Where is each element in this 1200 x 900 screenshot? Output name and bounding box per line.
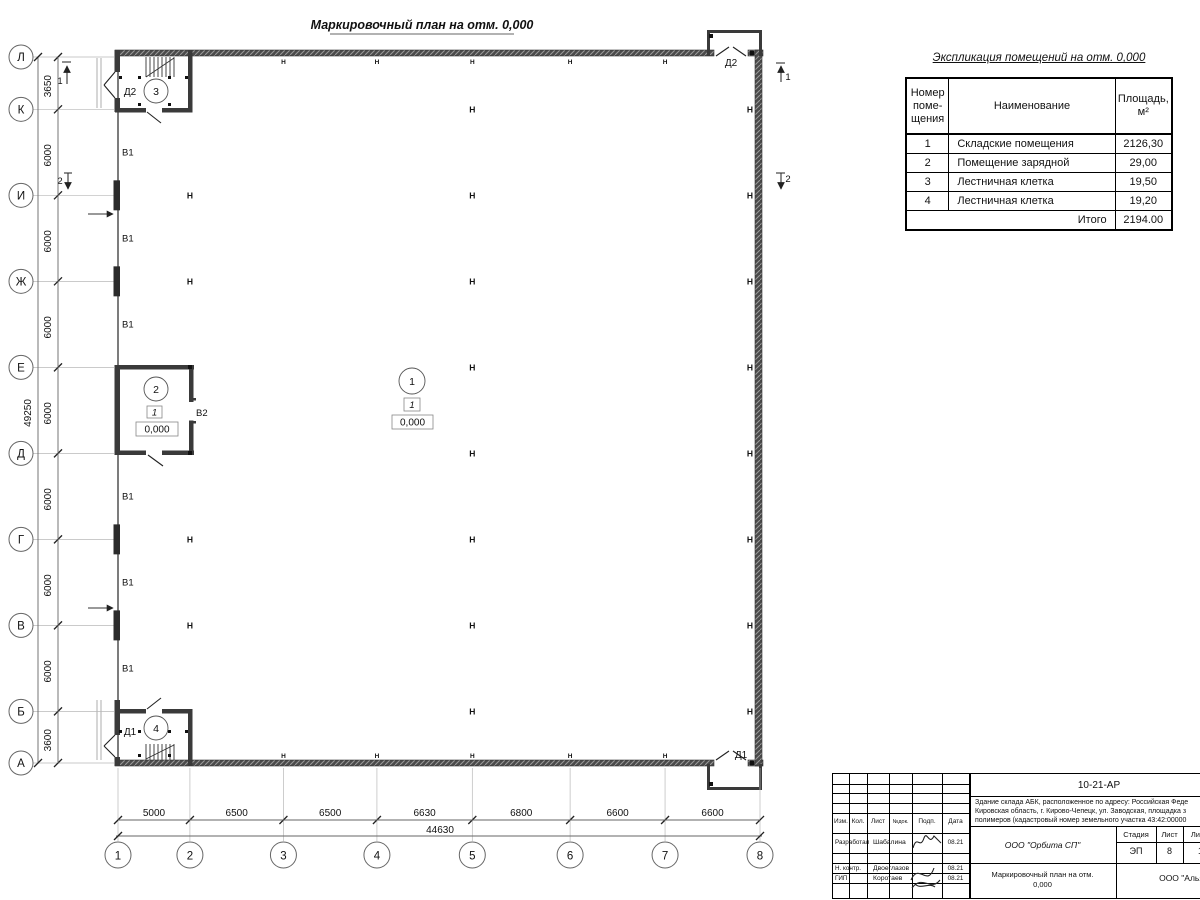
steel-column-symbol: Н [747,104,753,114]
exterior-walls [115,50,764,766]
door-leaf [104,735,115,757]
steel-column-symbol: Н [187,620,193,630]
door-label: Д2 [124,87,137,98]
stage-value: ЭП [1116,846,1156,856]
steel-column-symbol: Н [187,276,193,286]
col-axis-label: 8 [757,851,763,863]
col-podp: Подп. [912,818,942,825]
steel-column-symbol: Н [747,534,753,544]
steel-column-symbol: Н [663,753,668,760]
room-name-cell: Лестничная клетка [949,192,1115,211]
steel-column-symbol: Н [469,534,475,544]
dimension-text: 6800 [510,808,533,819]
header-line: щения [907,113,948,126]
floor-type: 1 [409,400,414,411]
sheets-value: 17 [1183,846,1200,856]
signature [907,860,945,892]
dimension-text: 6500 [226,808,249,819]
pilaster [114,524,121,554]
col-axis-label: 4 [374,851,381,863]
door-label: Д1 [735,750,748,761]
floor-plan: Маркировочный план на отм. 0,000 [0,0,830,900]
door-leaf [104,72,115,98]
col-header-name: Наименование [949,78,1115,134]
dimension-text: 6000 [43,316,54,339]
title-block: Изм. Кол. Лист №док. Подп. Дата Разработ… [832,773,1200,899]
steel-column-symbol: Н [187,190,193,200]
col-axis-label: 3 [280,851,286,863]
room-number: 2 [153,384,159,396]
drawing-title-line: Маркировочный план на отм. [969,870,1116,879]
sign-name: Коротаев [873,875,902,882]
explication-table: Номер поме- щения Наименование Площадь, … [905,77,1173,231]
sign-date: 08.21 [942,839,969,846]
sheet-label: Лист [1156,830,1183,839]
explication-title: Экспликация помещений на отм. 0,000 [905,52,1173,64]
project-description-line: Кировская область, г. Кирово-Чепецк, ул.… [975,808,1186,815]
steel-column-symbol: Н [469,190,475,200]
room-name-cell: Складские помещения [949,134,1115,154]
table-row: 2 Помещение зарядной 29,00 [906,154,1172,173]
steel-column-symbol: Н [747,706,753,716]
steel-column-symbol: Н [281,59,286,66]
door-leaf [716,47,746,56]
exterior-landings [97,58,101,760]
design-company: ООО "Орбита СП" [969,840,1116,850]
dimension-text: 6000 [43,488,54,511]
total-label-cell: Итого [906,211,1115,231]
contractor-company: ООО "Альянс [1116,873,1200,883]
sign-name: Двоеглазов [873,865,909,872]
window-mark: В1 [122,147,134,158]
door-label: Д1 [124,727,137,738]
table-header-row: Номер поме- щения Наименование Площадь, … [906,78,1172,134]
room-name-cell: Лестничная клетка [949,173,1115,192]
dimension-text: 6000 [43,574,54,597]
row-axis-label: И [17,190,25,202]
header-line: поме- [907,100,948,113]
overall-dimension-text: 44630 [426,825,454,836]
steel-column-symbol: Н [747,276,753,286]
room-area-cell: 2126,30 [1115,134,1172,154]
steel-column-symbol: Н [375,753,380,760]
dimension-text: 6500 [319,808,342,819]
steel-column-symbol: Н [469,706,475,716]
sign-date: 08.21 [942,865,969,872]
sign-name: Шабалина [873,839,906,846]
steel-column-symbol: Н [747,448,753,458]
col-kol: Кол. [849,818,867,825]
room-area-cell: 29,00 [1115,154,1172,173]
col-izm: Изм. [833,818,849,825]
row-axis-label: Е [17,362,25,374]
project-description-line: полимеров (кадастровый номер земельного … [975,817,1186,824]
row-axis-label: К [18,104,25,116]
room-number: 4 [153,723,159,735]
window-mark: В1 [122,577,134,588]
col-axis-label: 7 [662,851,668,863]
col-axis-label: 2 [187,851,193,863]
dimension-text: 3650 [43,75,54,98]
elevation-value: 0,000 [400,418,425,429]
steel-column-symbol: Н [469,620,475,630]
dimension-text: 6630 [413,808,436,819]
door-leaf [147,698,161,709]
steel-column-symbol: Н [470,753,475,760]
dimension-text: 6000 [43,144,54,167]
sign-date: 08.21 [942,875,969,882]
window-mark: В1 [122,491,134,502]
vestibule-top-right: Д2 [707,30,762,69]
drawing-sheet: Маркировочный план на отм. 0,000 [0,0,1200,900]
steel-column-symbol: Н [568,753,573,760]
sheet-value: 8 [1156,846,1183,856]
row-axis-label: В [17,620,25,632]
stair-symbol [146,744,174,760]
floor-type: 1 [152,408,157,419]
stair-symbol [146,57,174,77]
steel-column-symbol: Н [568,59,573,66]
overall-dimension-text: 49250 [23,399,34,427]
room-area-cell: 19,50 [1115,173,1172,192]
total-value-cell: 2194.00 [1115,211,1172,231]
dimension-text: 5000 [143,808,166,819]
steel-column-symbol: Н [747,190,753,200]
dimension-text: 6000 [43,230,54,253]
steel-column-symbol: Н [470,59,475,66]
explication-panel: Экспликация помещений на отм. 0,000 Номе… [905,52,1173,231]
row-axis-label: Ж [16,276,27,288]
steel-column-symbol: Н [663,59,668,66]
col-axis-label: 6 [567,851,573,863]
table-row: 1 Складские помещения 2126,30 [906,134,1172,154]
pilaster [114,266,121,296]
dimension-text: 6000 [43,402,54,425]
room-area-cell: 19,20 [1115,192,1172,211]
header-line: м² [1116,106,1171,119]
stage-label: Стадия [1116,830,1156,839]
room-number-cell: 1 [906,134,949,154]
room-number-cell: 4 [906,192,949,211]
project-description-line: Здание склада АБК, расположенное по адре… [975,799,1188,806]
steel-column-symbol: Н [469,276,475,286]
col-ndok: №док. [889,819,912,825]
pilaster [114,610,121,640]
room-number: 3 [153,86,159,98]
room-number: 1 [409,376,415,388]
row-axis-label: Г [18,534,25,546]
door-leaf [148,455,163,466]
col-axis-label: 5 [469,851,475,863]
steel-column-symbol: Н [747,362,753,372]
steel-column-symbol: Н [281,753,286,760]
window-mark: В1 [122,663,134,674]
window-mark: В1 [122,319,134,330]
dimension-text: 3600 [43,729,54,752]
elevation-value: 0,000 [144,425,169,436]
dimension-text: 6000 [43,660,54,683]
dimension-text: 6600 [701,808,724,819]
axes-and-dimensions: ЛКИЖЕДГВБА365060006000600060006000600060… [9,45,773,868]
plan-title: Маркировочный план на отм. 0,000 [311,18,534,32]
sign-role: Н. контр. [835,865,861,872]
sheets-label: Листов [1183,830,1200,839]
signature [910,830,944,854]
col-axis-label: 1 [115,851,121,863]
entry-arrows [88,214,113,608]
header-line: Площадь, [1116,93,1171,106]
room-number-cell: 2 [906,154,949,173]
steel-column-symbol: Н [469,104,475,114]
steel-column-symbol: Н [469,448,475,458]
sign-role: Разработал [835,839,869,846]
steel-column-symbol: Н [187,534,193,544]
row-axis-label: А [17,758,25,770]
section-mark-number: 1 [785,72,790,83]
vestibule-bottom-right: Д1 [707,750,762,790]
col-list: Лист [867,818,889,825]
drawing-title-line: 0,000 [969,880,1116,889]
table-total-row: Итого 2194.00 [906,211,1172,231]
section-marks: 1 2 1 2 [57,62,790,189]
room-number-cell: 3 [906,173,949,192]
door-leaf [147,112,161,123]
steel-column-symbol: Н [469,362,475,372]
table-row: 3 Лестничная клетка 19,50 [906,173,1172,192]
charging-room: В2 2 1 0,000 [115,365,208,466]
section-mark-number: 2 [785,174,790,185]
dimension-text: 6600 [606,808,629,819]
gate-mark: В2 [196,408,208,419]
room-name-cell: Помещение зарядной [949,154,1115,173]
row-axis-label: Б [17,706,25,718]
col-header-area: Площадь, м² [1115,78,1172,134]
col-header-room-number: Номер поме- щения [906,78,949,134]
window-mark: В1 [122,233,134,244]
pilaster [114,180,121,210]
door-label: Д2 [725,58,738,69]
row-axis-label: Д [17,448,25,460]
header-line: Номер [907,87,948,100]
steel-column-symbol: Н [375,59,380,66]
table-row: 4 Лестничная клетка 19,20 [906,192,1172,211]
col-data: Дата [942,818,969,825]
document-number: 10-21-АР [969,780,1200,791]
warehouse-room-markers: 1 1 0,000 [392,368,433,429]
steel-column-symbol: Н [747,620,753,630]
row-axis-label: Л [17,52,25,64]
sign-role: ГИП [835,875,847,882]
